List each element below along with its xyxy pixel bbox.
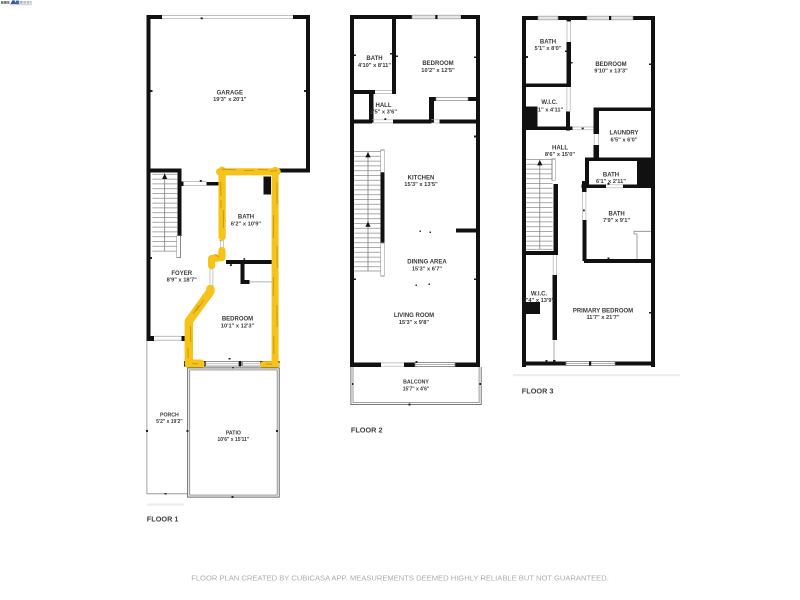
svg-text:LIVING ROOM: LIVING ROOM — [394, 313, 434, 319]
svg-text:8'6" x 15'0": 8'6" x 15'0" — [545, 152, 576, 158]
svg-text:6'1" x 2'11": 6'1" x 2'11" — [596, 179, 626, 185]
svg-text:W.I.C.: W.I.C. — [531, 291, 548, 297]
svg-text:1" x 4'11": 1" x 4'11" — [538, 107, 564, 113]
svg-text:PORCH: PORCH — [160, 412, 179, 418]
svg-text:FOYER: FOYER — [171, 271, 192, 277]
svg-text:7'4" x 13'9": 7'4" x 13'9" — [524, 298, 555, 304]
svg-text:5'1" x 8'0": 5'1" x 8'0" — [534, 46, 561, 52]
svg-text:19'3" x 20'1": 19'3" x 20'1" — [213, 97, 247, 103]
svg-text:PATIO: PATIO — [226, 431, 241, 437]
svg-text:6'5" x 6'0": 6'5" x 6'0" — [610, 137, 637, 143]
svg-text:15'3" x 9'8": 15'3" x 9'8" — [399, 320, 430, 326]
svg-text:KITCHEN: KITCHEN — [408, 175, 435, 181]
svg-text:10'1" x 12'3": 10'1" x 12'3" — [221, 323, 255, 329]
svg-text:4'10" x 8'11": 4'10" x 8'11" — [358, 63, 391, 69]
svg-text:BATH: BATH — [238, 215, 254, 221]
svg-text:6'2" x 10'9": 6'2" x 10'9" — [231, 222, 262, 228]
svg-text:15'3" x 13'5": 15'3" x 13'5" — [404, 182, 438, 188]
svg-text:7'9" x 9'1": 7'9" x 9'1" — [603, 218, 630, 224]
svg-text:8'9" x 18'7": 8'9" x 18'7" — [167, 278, 198, 284]
svg-text:W.I.C.: W.I.C. — [541, 100, 558, 106]
svg-text:11'7" x 21'7": 11'7" x 21'7" — [586, 315, 619, 321]
svg-text:BATH: BATH — [366, 56, 382, 62]
svg-text:BEDROOM: BEDROOM — [422, 61, 453, 67]
svg-text:BATH: BATH — [603, 173, 619, 179]
svg-text:BATH: BATH — [608, 211, 624, 217]
svg-text:FLOOR PLAN CREATED BY CUBICASA: FLOOR PLAN CREATED BY CUBICASA APP. MEAS… — [191, 573, 609, 582]
svg-text:FLOOR 3: FLOOR 3 — [522, 386, 554, 395]
svg-text:PRIMARY BEDROOM: PRIMARY BEDROOM — [573, 308, 633, 314]
svg-text:9'10" x 13'3": 9'10" x 13'3" — [594, 69, 628, 75]
svg-text:BEDROOM: BEDROOM — [595, 62, 626, 68]
svg-text:GARAGE: GARAGE — [217, 91, 243, 97]
svg-text:HALL: HALL — [376, 103, 392, 109]
svg-text:DINING AREA: DINING AREA — [407, 260, 447, 266]
svg-text:2'5" x 3'6": 2'5" x 3'6" — [370, 110, 397, 116]
svg-text:5'2" x 19'2": 5'2" x 19'2" — [156, 419, 183, 425]
svg-text:10'2" x 12'5": 10'2" x 12'5" — [421, 68, 455, 74]
svg-text:LAUNDRY: LAUNDRY — [609, 131, 638, 137]
svg-text:HALL: HALL — [552, 145, 568, 151]
svg-text:15'3" x 6'7": 15'3" x 6'7" — [412, 266, 443, 272]
svg-text:15'7" x 4'6": 15'7" x 4'6" — [403, 386, 430, 392]
svg-text:FLOOR 2: FLOOR 2 — [351, 426, 383, 435]
svg-text:BEDROOM: BEDROOM — [222, 317, 253, 323]
svg-text:FLOOR 1: FLOOR 1 — [147, 515, 179, 524]
svg-text:BATH: BATH — [540, 39, 556, 45]
svg-text:BALCONY: BALCONY — [403, 380, 429, 386]
svg-text:10'6" x 15'11": 10'6" x 15'11" — [217, 437, 249, 443]
